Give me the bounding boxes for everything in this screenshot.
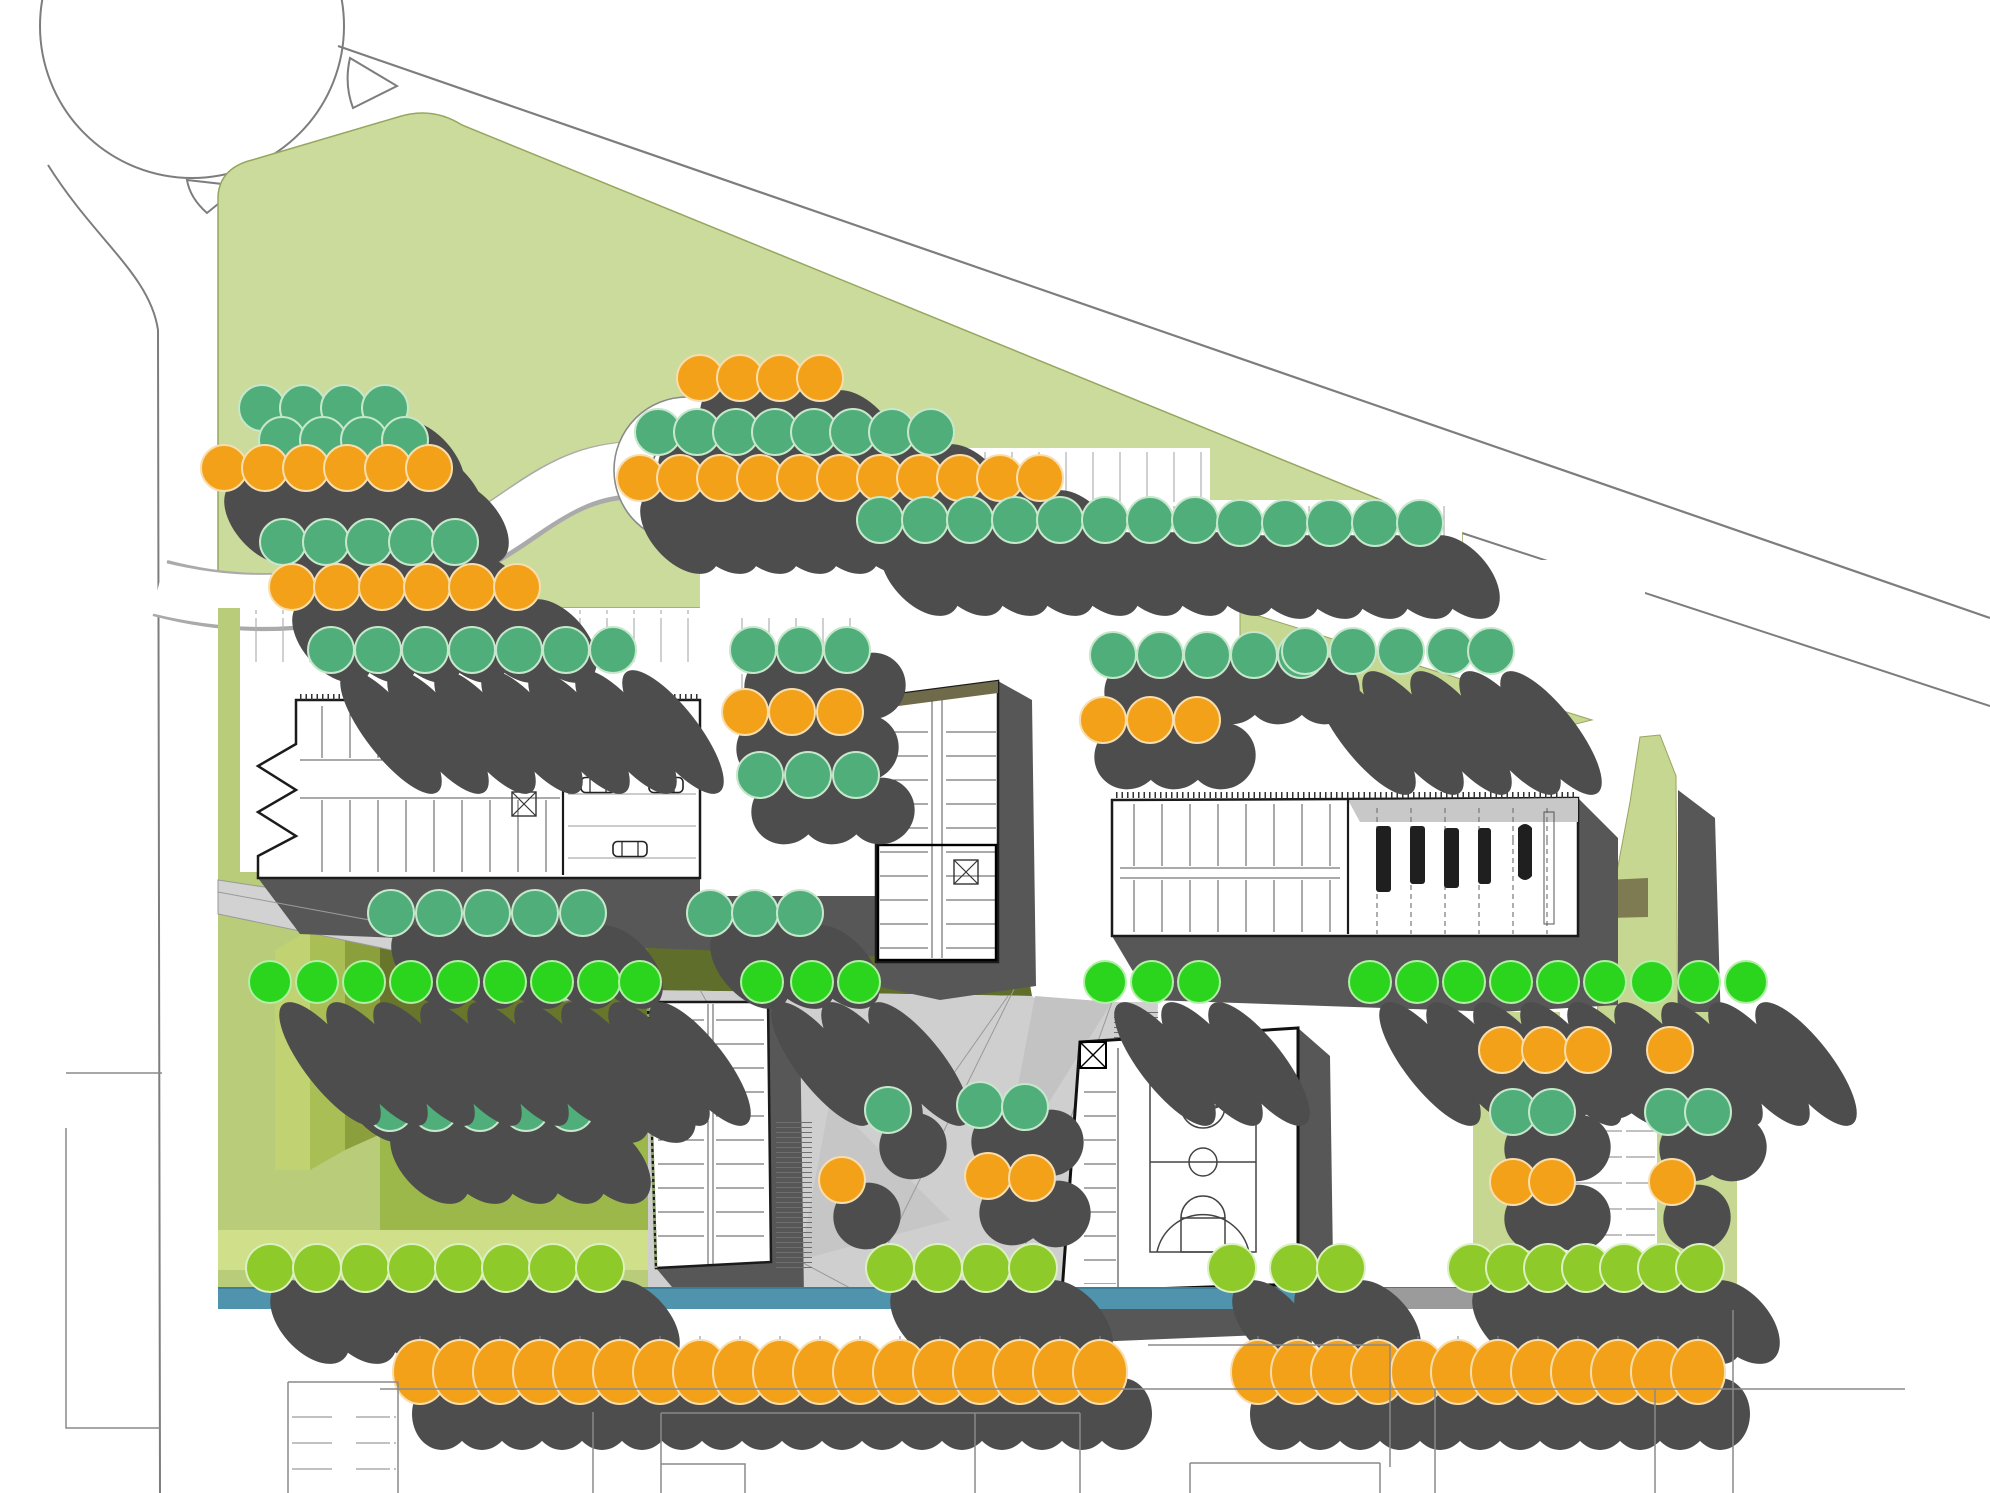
tree-sea xyxy=(777,890,823,936)
tree-vivid xyxy=(531,961,573,1003)
tree-orange xyxy=(797,355,843,401)
site-plan-canvas: H xyxy=(0,0,1990,1493)
tree-sea xyxy=(1127,497,1173,543)
tree-sea xyxy=(1082,497,1128,543)
tree-orange xyxy=(769,689,815,735)
tree-sea xyxy=(687,890,733,936)
tree-sea xyxy=(1427,628,1473,674)
tree-vivid xyxy=(741,961,783,1003)
tree-orange xyxy=(1080,697,1126,743)
tree-sea xyxy=(1002,1084,1048,1130)
tree-lime xyxy=(1270,1244,1318,1292)
tree-orange xyxy=(314,564,360,610)
tree-orange xyxy=(494,564,540,610)
tree-sea xyxy=(590,627,636,673)
tree-lime xyxy=(1208,1244,1256,1292)
tree-lime xyxy=(866,1244,914,1292)
tree-sea xyxy=(355,627,401,673)
tree-lime xyxy=(962,1244,1010,1292)
tree-vivid xyxy=(1584,961,1626,1003)
tree-sea xyxy=(449,627,495,673)
tree-vivid xyxy=(1490,961,1532,1003)
tree-sea xyxy=(785,752,831,798)
tree-lime xyxy=(435,1244,483,1292)
tree-sea xyxy=(308,627,354,673)
tree-orange xyxy=(283,445,329,491)
tree-sea xyxy=(957,1082,1003,1128)
tree-lime xyxy=(529,1244,577,1292)
tree-vivid xyxy=(484,961,526,1003)
tree-sea xyxy=(402,627,448,673)
tree-orange xyxy=(242,445,288,491)
tree-sea xyxy=(992,497,1038,543)
tree-sea xyxy=(777,627,823,673)
tree-sea xyxy=(346,519,392,565)
tree-orange xyxy=(1174,697,1220,743)
tree-vivid xyxy=(1349,961,1391,1003)
tree-lime xyxy=(1009,1244,1057,1292)
tree-sea xyxy=(1307,500,1353,546)
tree-vivid xyxy=(249,961,291,1003)
tree-orange xyxy=(406,445,452,491)
tree-lime xyxy=(576,1244,624,1292)
tree-sea xyxy=(1231,632,1277,678)
rescue-boat xyxy=(1518,824,1532,880)
tree-sea xyxy=(1397,500,1443,546)
tree-lime xyxy=(388,1244,436,1292)
tree-sea xyxy=(1330,628,1376,674)
tree-sea xyxy=(560,890,606,936)
tree-vivid xyxy=(1678,961,1720,1003)
tree-vivid xyxy=(390,961,432,1003)
tree-sea xyxy=(260,519,306,565)
tree-sea xyxy=(1685,1089,1731,1135)
tree-orange xyxy=(1073,1340,1127,1404)
tree-sea xyxy=(1262,500,1308,546)
tree-orange xyxy=(1565,1027,1611,1073)
tree-sea xyxy=(732,890,778,936)
tree-sea xyxy=(303,519,349,565)
tree-vivid xyxy=(296,961,338,1003)
tree-orange xyxy=(1017,455,1063,501)
tree-orange xyxy=(269,564,315,610)
tree-orange xyxy=(201,445,247,491)
tree-sea xyxy=(1282,628,1328,674)
tree-sea xyxy=(947,497,993,543)
tree-vivid xyxy=(1178,961,1220,1003)
tree-orange xyxy=(1479,1027,1525,1073)
tree-row-orange xyxy=(393,1336,1152,1450)
tree-lime xyxy=(341,1244,389,1292)
tree-sea xyxy=(416,890,462,936)
tree-vivid xyxy=(619,961,661,1003)
tree-vivid xyxy=(1631,961,1673,1003)
tree-vivid xyxy=(437,961,479,1003)
tree-orange xyxy=(1671,1340,1725,1404)
tree-orange xyxy=(404,564,450,610)
tree-vivid xyxy=(1084,961,1126,1003)
tree-sea xyxy=(368,890,414,936)
tree-orange xyxy=(817,689,863,735)
tree-vivid xyxy=(1396,961,1438,1003)
building-fire-station xyxy=(1112,795,1578,936)
tree-orange xyxy=(819,1157,865,1203)
tree-orange xyxy=(324,445,370,491)
tree-orange xyxy=(1647,1027,1693,1073)
tree-vivid xyxy=(1725,961,1767,1003)
tree-lime xyxy=(482,1244,530,1292)
tree-row-orange xyxy=(1231,1336,1750,1450)
tree-orange xyxy=(1009,1155,1055,1201)
tree-lime xyxy=(1317,1244,1365,1292)
tree-sea xyxy=(1529,1089,1575,1135)
tree-vivid xyxy=(1131,961,1173,1003)
tree-lime xyxy=(1676,1244,1724,1292)
tree-sea xyxy=(512,890,558,936)
tree-vivid xyxy=(343,961,385,1003)
tree-sea xyxy=(1352,500,1398,546)
tree-orange xyxy=(722,689,768,735)
tree-sea xyxy=(432,519,478,565)
tree-vivid xyxy=(1537,961,1579,1003)
tree-sea xyxy=(1184,632,1230,678)
tree-vivid xyxy=(791,961,833,1003)
tree-sea xyxy=(902,497,948,543)
tree-vivid xyxy=(1443,961,1485,1003)
tree-orange xyxy=(1649,1159,1695,1205)
tree-sea xyxy=(543,627,589,673)
tree-orange xyxy=(365,445,411,491)
tree-orange xyxy=(449,564,495,610)
tree-orange xyxy=(359,564,405,610)
tree-sea xyxy=(865,1087,911,1133)
tree-sea xyxy=(1378,628,1424,674)
tree-lime xyxy=(246,1244,294,1292)
tree-sea xyxy=(1217,500,1263,546)
tree-lime xyxy=(293,1244,341,1292)
tree-sea xyxy=(737,752,783,798)
tree-vivid xyxy=(838,961,880,1003)
stairs-ramp xyxy=(776,1120,812,1270)
tree-sea xyxy=(833,752,879,798)
tree-sea xyxy=(1090,632,1136,678)
tree-lime xyxy=(914,1244,962,1292)
tree-orange xyxy=(1127,697,1173,743)
tree-sea xyxy=(1468,628,1514,674)
tree-sea xyxy=(730,627,776,673)
tree-orange xyxy=(1522,1027,1568,1073)
traffic-island xyxy=(348,58,397,108)
road-edge-left xyxy=(48,165,160,1493)
tree-sea xyxy=(824,627,870,673)
tree-vivid xyxy=(578,961,620,1003)
tree-orange xyxy=(1529,1159,1575,1205)
tree-sea xyxy=(1172,497,1218,543)
tree-sea xyxy=(1037,497,1083,543)
tree-sea xyxy=(389,519,435,565)
tree-orange xyxy=(965,1153,1011,1199)
tree-sea xyxy=(1137,632,1183,678)
tree-sea xyxy=(908,409,954,455)
tree-sea xyxy=(496,627,542,673)
tree-sea xyxy=(464,890,510,936)
site-plan: H xyxy=(0,0,1990,1493)
tree-sea xyxy=(857,497,903,543)
